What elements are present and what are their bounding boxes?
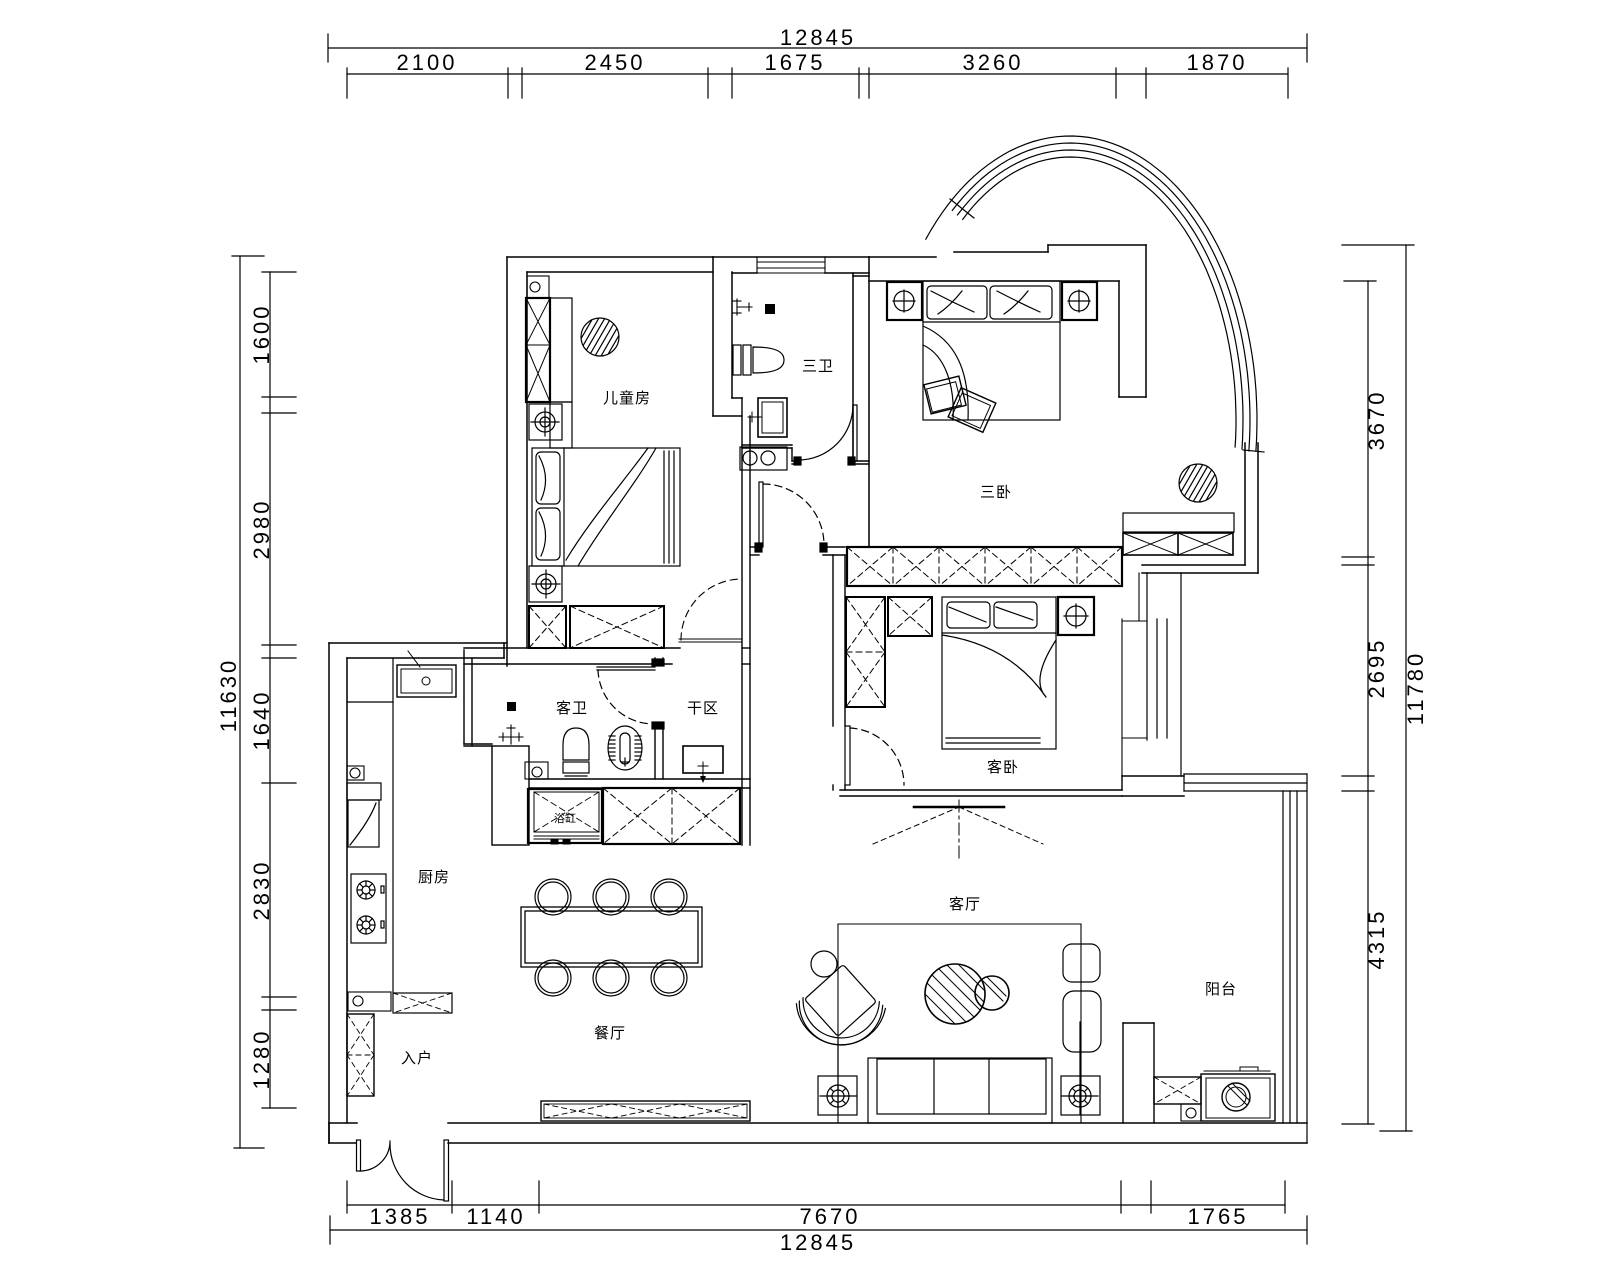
svg-text:浴缸: 浴缸 [554,811,576,825]
svg-text:客厅: 客厅 [949,896,981,913]
svg-text:儿童房: 儿童房 [603,389,651,407]
svg-text:3670: 3670 [1364,390,1389,451]
svg-text:1140: 1140 [466,1204,525,1229]
svg-text:客卧: 客卧 [987,759,1019,776]
svg-text:12845: 12845 [780,25,856,50]
svg-text:1765: 1765 [1188,1204,1249,1229]
svg-text:2830: 2830 [249,860,274,921]
svg-text:1870: 1870 [1187,50,1248,75]
svg-text:三卧: 三卧 [980,484,1012,501]
svg-text:1385: 1385 [370,1204,431,1229]
svg-text:餐厅: 餐厅 [594,1025,626,1042]
svg-text:入户: 入户 [401,1050,433,1067]
svg-text:11780: 11780 [1403,651,1428,726]
svg-text:4315: 4315 [1364,909,1389,970]
svg-text:1600: 1600 [249,304,274,365]
svg-text:三卫: 三卫 [802,358,834,375]
svg-text:1280: 1280 [249,1029,274,1090]
svg-text:1675: 1675 [765,50,826,75]
svg-text:3260: 3260 [963,50,1024,75]
svg-text:1640: 1640 [249,690,274,751]
svg-text:11630: 11630 [216,658,241,733]
svg-text:干区: 干区 [687,700,719,717]
svg-text:2450: 2450 [585,50,646,75]
svg-text:客卫: 客卫 [556,700,588,717]
svg-text:7670: 7670 [800,1204,861,1229]
svg-text:12845: 12845 [780,1230,856,1255]
svg-text:阳台: 阳台 [1205,981,1237,998]
svg-text:2100: 2100 [397,50,458,75]
svg-text:2980: 2980 [249,499,274,560]
svg-text:2695: 2695 [1364,638,1389,699]
svg-text:厨房: 厨房 [418,869,450,886]
